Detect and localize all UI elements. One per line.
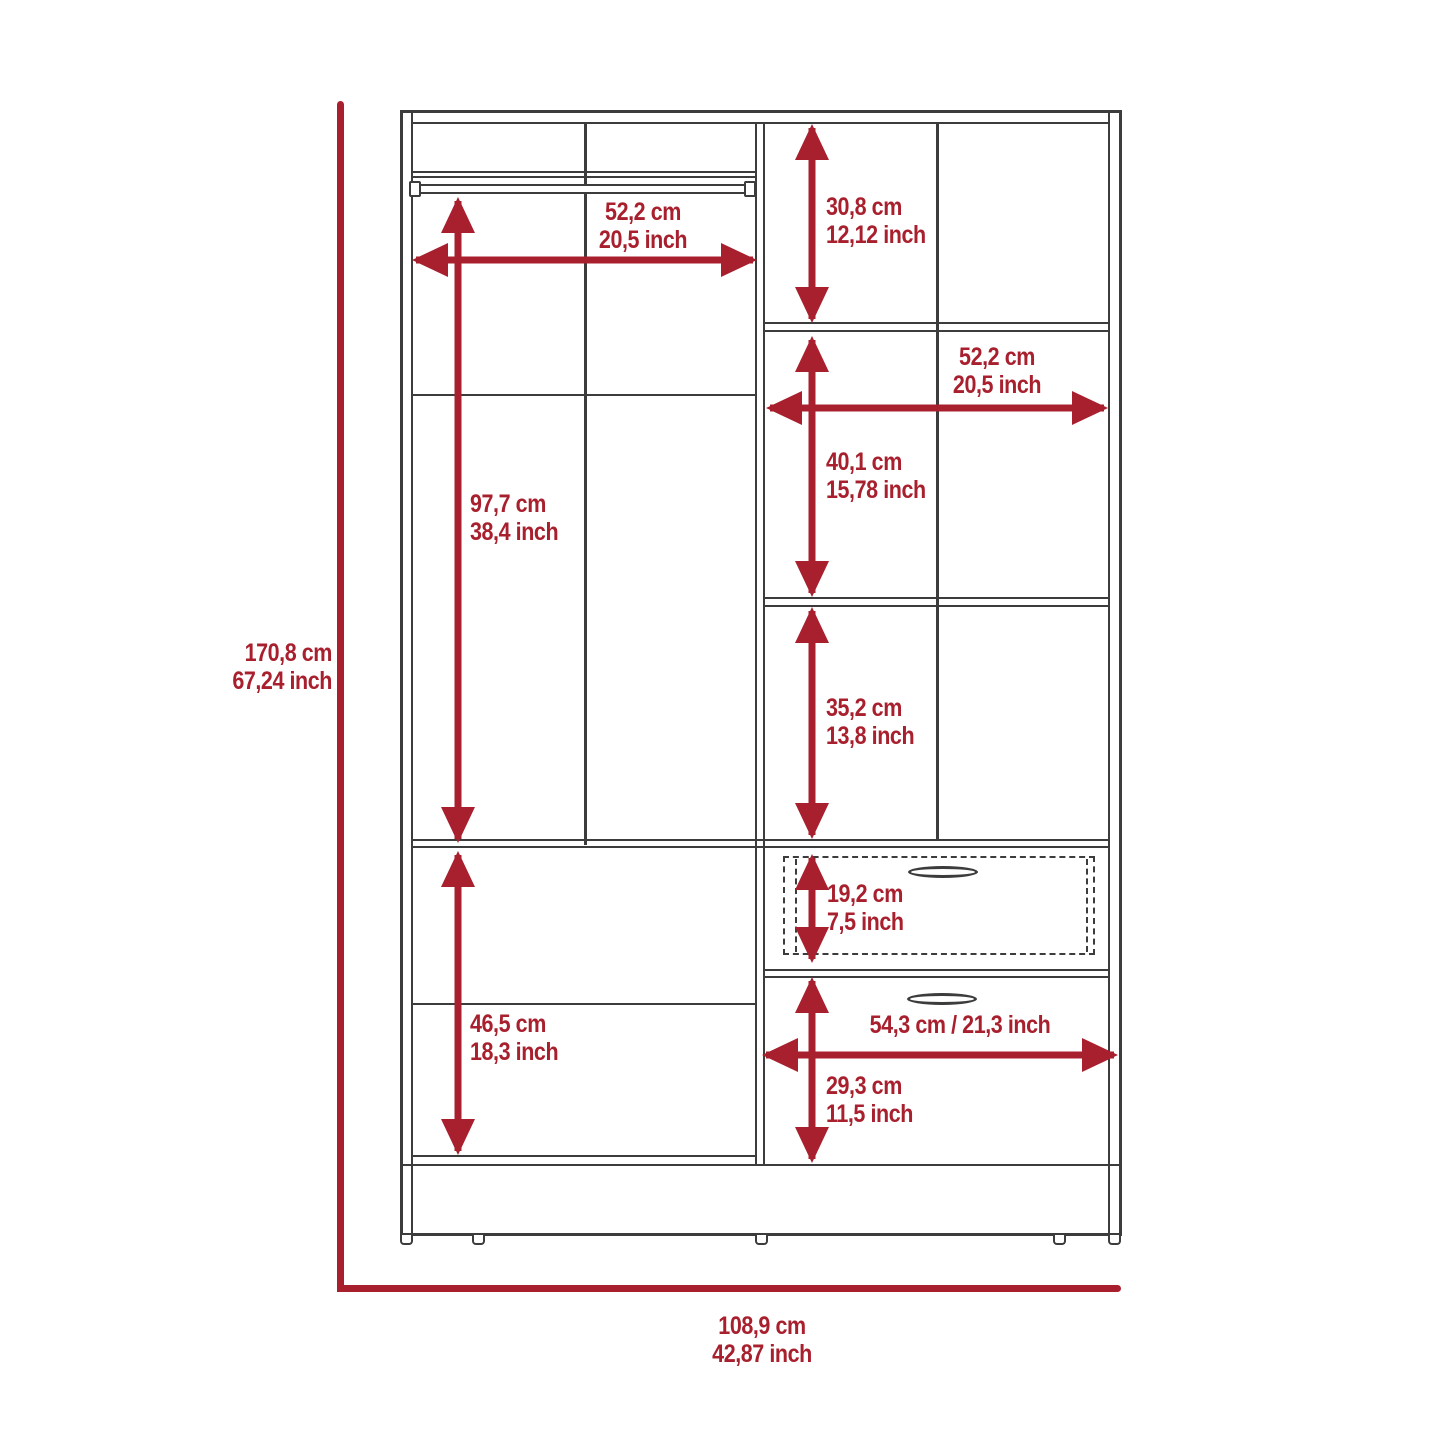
foot-right-wall bbox=[1108, 1235, 1121, 1245]
arrow-mid-right-height-40 bbox=[795, 336, 829, 597]
overall-height-reference-line bbox=[337, 101, 344, 1292]
arrow-left-lower-height-46 bbox=[441, 851, 475, 1155]
base-top-line bbox=[403, 1164, 1119, 1166]
arrow-lower-right-height-35 bbox=[795, 607, 829, 839]
label-mid-right-height: 40,1 cm 15,78 inch bbox=[826, 449, 926, 504]
label-overall-width: 108,9 cm 42,87 inch bbox=[633, 1313, 891, 1368]
arrow-top-right-height-30 bbox=[795, 124, 829, 323]
drawer2-handle bbox=[907, 993, 977, 1005]
center-partition-line-left bbox=[755, 124, 757, 1164]
wardrobe-dimension-diagram: 52,2 cm 20,5 inch 97,7 cm 38,4 inch 30,8… bbox=[0, 0, 1445, 1445]
rod-shelf-line-2 bbox=[411, 176, 757, 178]
hanging-rod-bracket-left bbox=[409, 181, 421, 197]
foot-left bbox=[472, 1235, 485, 1245]
left-doors-bottom-line bbox=[411, 1155, 757, 1157]
main-bottom-line-2 bbox=[411, 846, 1110, 848]
drawer-boundary-line-1 bbox=[763, 969, 1110, 971]
label-lower-right-height: 35,2 cm 13,8 inch bbox=[826, 695, 914, 750]
top-panel-inner-line bbox=[411, 122, 1110, 124]
label-overall-height: 170,8 cm 67,24 inch bbox=[160, 640, 332, 695]
foot-left-wall bbox=[400, 1235, 413, 1245]
label-drawer2-height: 29,3 cm 11,5 inch bbox=[826, 1073, 913, 1128]
label-drawer2-width: 54,3 cm / 21,3 inch bbox=[814, 1012, 1106, 1040]
hanging-rod bbox=[416, 184, 750, 194]
foot-right bbox=[1053, 1235, 1066, 1245]
label-left-lower-height: 46,5 cm 18,3 inch bbox=[470, 1011, 558, 1066]
rod-shelf-line-1 bbox=[411, 171, 757, 173]
drawer1-handle bbox=[908, 866, 978, 878]
label-top-right-height: 30,8 cm 12,12 inch bbox=[826, 194, 926, 249]
right-section-divider-line bbox=[936, 124, 939, 839]
label-left-height: 97,7 cm 38,4 inch bbox=[470, 491, 558, 546]
foot-center bbox=[755, 1235, 768, 1245]
arrow-drawer2-width-54 bbox=[762, 1038, 1118, 1072]
center-partition-line-right bbox=[763, 124, 765, 1164]
label-hang-width: 52,2 cm 20,5 inch bbox=[557, 199, 729, 254]
hanging-rod-bracket-right bbox=[744, 181, 756, 197]
label-right-width: 52,2 cm 20,5 inch bbox=[911, 344, 1083, 399]
left-side-panel-inner-line bbox=[411, 113, 413, 1233]
arrow-drawer1-height-19 bbox=[795, 854, 829, 963]
overall-width-reference-line bbox=[337, 1285, 1121, 1292]
drawer1-dashed-side-right bbox=[1086, 859, 1088, 952]
main-bottom-line-1 bbox=[411, 839, 1110, 841]
label-drawer1-height: 19,2 cm 7,5 inch bbox=[827, 881, 904, 936]
